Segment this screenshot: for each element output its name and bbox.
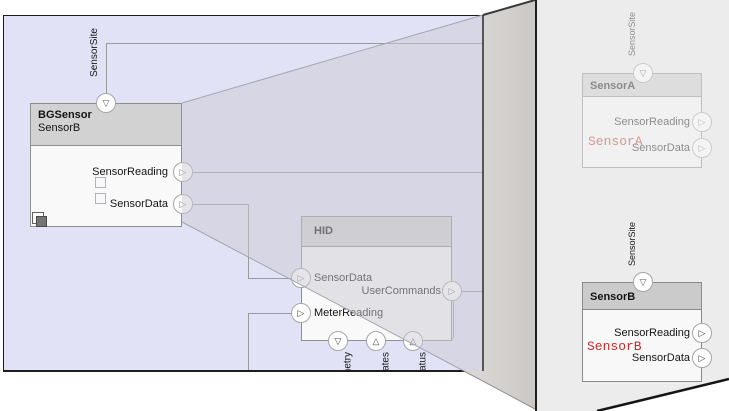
variant-b-sensorreading-port[interactable]: ▷ — [692, 323, 712, 343]
variant-a-top-port[interactable]: ▽ — [633, 63, 653, 83]
port-out-icon: ▷ — [699, 329, 706, 338]
variant-b-port-label-sensorreading: SensorReading — [614, 327, 690, 339]
variant-a-sensorreading-port[interactable]: ▷ — [692, 112, 712, 132]
port-out-icon: ▷ — [699, 144, 706, 153]
variant-a-sensordata-port[interactable]: ▷ — [692, 138, 712, 158]
variant-panel: SensorSite ▽ SensorA SensorReading Senso… — [0, 0, 729, 411]
variant-b-code-label: SensorB — [587, 339, 642, 354]
variant-b-sensordata-port[interactable]: ▷ — [692, 348, 712, 368]
port-out-icon: ▷ — [699, 118, 706, 127]
port-out-icon: ▷ — [699, 354, 706, 363]
screenshot-page: SensorSite BGSensor SensorB SensorReadin… — [0, 0, 729, 411]
port-down-icon: ▽ — [640, 278, 647, 287]
variant-a-code-label: SensorA — [588, 134, 643, 149]
variant-a-port-label-sensorreading: SensorReading — [614, 116, 690, 128]
port-down-icon: ▽ — [640, 69, 647, 78]
variant-b-top-port[interactable]: ▽ — [633, 272, 653, 292]
